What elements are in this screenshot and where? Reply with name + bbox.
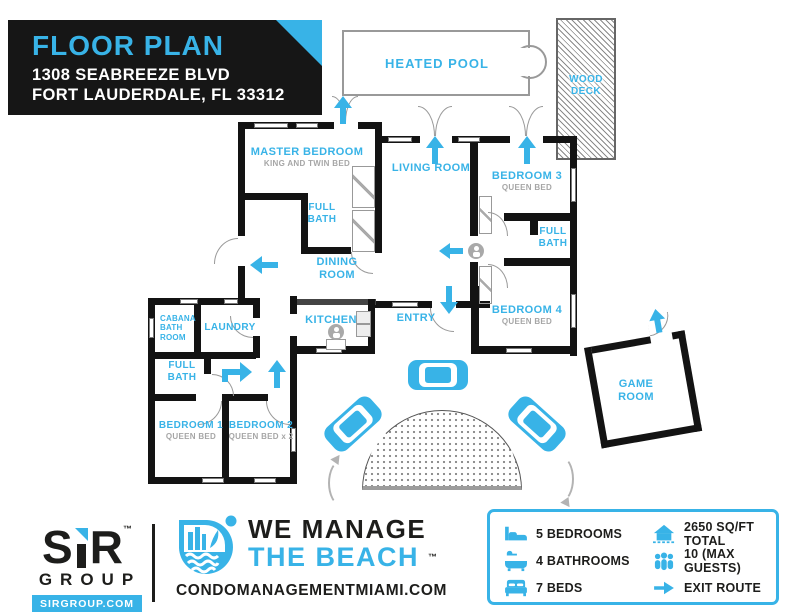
page-title: FLOOR PLAN	[32, 30, 224, 62]
full-bath-right-label: FULL BATH	[539, 226, 568, 250]
window	[571, 294, 576, 328]
driveway-curve-arrow	[548, 456, 574, 502]
window	[458, 137, 480, 142]
door-arc	[526, 106, 543, 136]
driveway-landscaping	[362, 410, 522, 490]
stove-icon	[356, 311, 371, 324]
brand-website: CONDOMANAGEMENTMIAMI.COM	[176, 582, 447, 600]
legend-item-exit-route: EXIT ROUTE	[652, 574, 776, 601]
exit-arrow-icon	[652, 579, 676, 597]
wall	[238, 122, 245, 202]
wall	[292, 299, 376, 305]
car-icon	[408, 360, 468, 390]
wall	[238, 266, 245, 302]
bed-icon	[504, 524, 528, 544]
sir-group-text: GROUP	[32, 570, 148, 590]
kitchen-label: KITCHEN	[305, 314, 357, 327]
detector-icon	[468, 243, 484, 259]
sir-group-logo: S R ™ GROUP SIRGROUP.COM	[26, 522, 148, 612]
blue-triangle-icon	[75, 528, 88, 541]
wall	[238, 193, 308, 200]
bedroom4-label: BEDROOM 4 QUEEN BED	[492, 304, 562, 326]
master-bedroom-label: MASTER BEDROOM KING AND TWIN BED	[251, 146, 364, 168]
closet	[352, 210, 375, 252]
corner-triangle-decoration	[276, 20, 322, 66]
cabana-bath-label: CABANA BATH ROOM	[160, 314, 196, 342]
closet	[352, 166, 375, 208]
game-room-label: GAME ROOM	[618, 378, 654, 404]
exit-arrow-left	[250, 256, 280, 274]
wall	[470, 136, 478, 192]
header-banner: FLOOR PLAN 1308 SEABREEZE BLVD FORT LAUD…	[8, 20, 322, 115]
wall	[504, 258, 570, 266]
footer-divider	[152, 524, 155, 602]
wall	[290, 352, 297, 484]
full-bath-master-label: FULL BATH	[308, 202, 337, 226]
sir-wordmark: S R ™	[26, 522, 148, 568]
guests-icon	[652, 551, 676, 571]
door-arc	[435, 106, 452, 136]
sink-icon	[326, 339, 346, 350]
exit-arrow-turn-right	[220, 360, 252, 384]
dining-room-label: DINING ROOM	[317, 256, 358, 282]
wall	[148, 394, 196, 401]
property-legend: 5 BEDROOMS 4 BATHROOMS 7 BEDS	[487, 509, 779, 605]
beds-icon	[504, 578, 528, 598]
closet	[479, 266, 492, 304]
wall	[470, 192, 478, 236]
heated-pool-label: HEATED POOL	[385, 56, 489, 71]
window	[224, 299, 238, 304]
window	[202, 478, 224, 483]
window	[571, 168, 576, 202]
floor-plan-flyer: FLOOR PLAN 1308 SEABREEZE BLVD FORT LAUD…	[0, 0, 792, 612]
living-room-label: LIVING ROOM	[392, 162, 470, 175]
sir-i-glyph	[74, 528, 89, 568]
exit-arrow-up	[518, 136, 536, 166]
door-arc	[418, 106, 435, 136]
window	[388, 137, 412, 142]
window	[180, 299, 198, 304]
wall	[290, 296, 297, 314]
oven-icon	[356, 324, 371, 337]
window	[149, 318, 154, 338]
brand-line2: THE BEACH ™	[248, 542, 439, 573]
laundry-label: LAUNDRY	[204, 322, 255, 334]
legend-item-beds: 7 BEDS	[504, 574, 650, 601]
legend-item-bedrooms: 5 BEDROOMS	[504, 520, 650, 547]
driveway-curve-arrow	[328, 460, 354, 506]
house-icon	[652, 523, 676, 545]
wall	[530, 213, 538, 235]
full-bath-left-label: FULL BATH	[168, 360, 197, 384]
wood-deck-label: WOOD DECK	[569, 74, 603, 98]
wall	[253, 298, 260, 318]
wall	[672, 330, 686, 339]
exit-arrow-down	[440, 284, 458, 314]
legend-item-bathrooms: 4 BATHROOMS	[504, 547, 650, 574]
window	[254, 123, 288, 128]
wall	[301, 247, 351, 254]
exit-arrow-up	[268, 360, 286, 390]
wall	[204, 352, 211, 374]
entry-label: ENTRY	[397, 312, 436, 325]
closet	[479, 196, 492, 234]
bedroom1-label: BEDROOM 1 QUEEN BED	[159, 420, 223, 441]
window	[254, 478, 276, 483]
car-icon	[505, 393, 570, 455]
exit-arrow-up	[334, 96, 352, 126]
wall	[471, 286, 479, 352]
window	[296, 123, 318, 128]
exit-arrow-left	[439, 243, 465, 259]
window	[506, 348, 532, 353]
brand-line1: WE MANAGE	[248, 514, 426, 545]
bath-icon	[504, 550, 528, 572]
bedroom2-label: BEDROOM 2 QUEEN BED x 2	[229, 420, 294, 441]
legend-item-guests: 10 (MAX GUESTS)	[652, 547, 776, 574]
wall	[148, 298, 260, 305]
wall	[238, 200, 245, 236]
window	[392, 302, 418, 307]
door-arc	[214, 238, 238, 264]
bedroom3-label: BEDROOM 3 QUEEN BED	[492, 170, 562, 192]
sir-group-url: SIRGROUP.COM	[32, 595, 142, 612]
beach-logo-icon	[174, 514, 238, 580]
pool-alcove-join	[510, 48, 530, 76]
address-line2: FORT LAUDERDALE, FL 33312	[32, 86, 285, 105]
door-arc	[509, 106, 526, 136]
legend-item-sqft: 2650 SQ/FT TOTAL	[652, 520, 776, 547]
wall	[148, 352, 256, 359]
wall	[591, 336, 651, 353]
address-line1: 1308 SEABREEZE BLVD	[32, 66, 230, 85]
